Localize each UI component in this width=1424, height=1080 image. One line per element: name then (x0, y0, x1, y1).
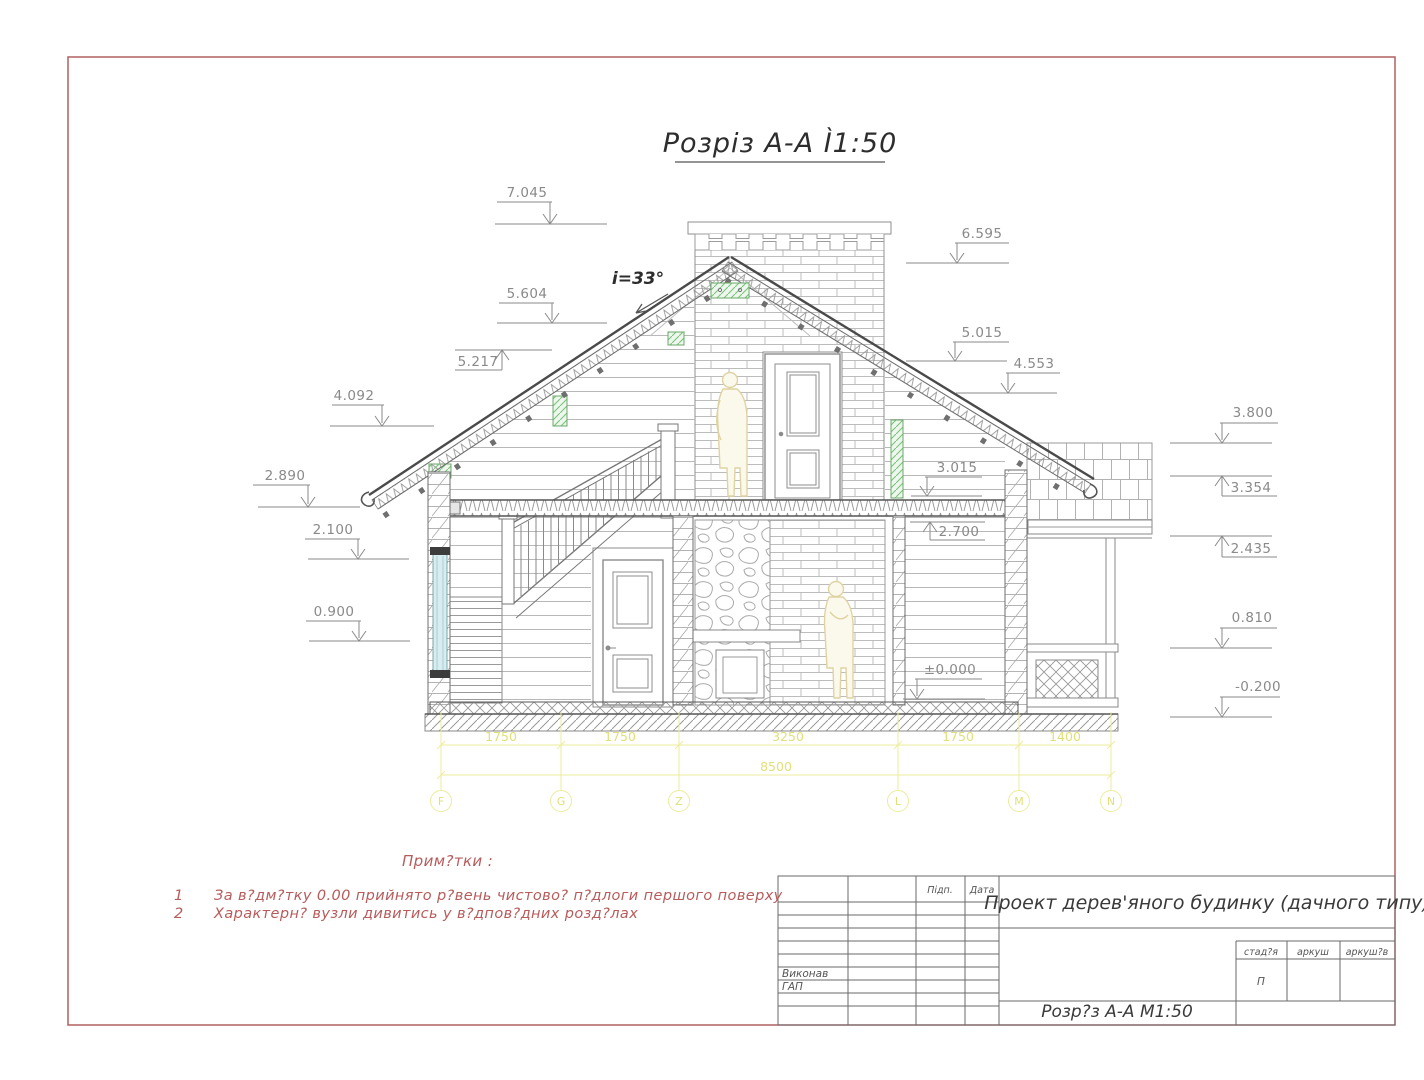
section-drawing-canvas: Розріз А-А Ì1:50 (0, 0, 1424, 1080)
interior-wall (673, 516, 693, 705)
dim-segment: 3250 (772, 729, 804, 744)
porch-lattice (1036, 660, 1098, 698)
section-title: Розріз А-А Ì1:50 (663, 127, 898, 162)
sheets-label: аркуш?в (1346, 947, 1389, 958)
elevation-marker: 5.015 (906, 325, 1009, 361)
first-floor-ceiling (448, 500, 1022, 516)
porch-shingle-roof (1027, 443, 1152, 520)
ridge-plate (711, 283, 749, 298)
elevation-marker: 7.045 (495, 185, 607, 224)
elevation-marker: 5.217 (455, 350, 552, 370)
title-block: Підп. Дата Виконав ГАП Проект дерев'яног… (778, 876, 1424, 1025)
svg-text:4.553: 4.553 (1014, 356, 1055, 372)
dim-total: 8500 (760, 759, 792, 774)
svg-text:±0.000: ±0.000 (924, 662, 976, 678)
exterior-wall-right (1005, 470, 1027, 714)
grid-axis-bubble: F (438, 795, 444, 808)
elevation-marker: 3.354 (1170, 476, 1277, 496)
dimension-labels: 1750 1750 3250 1750 1400 8500 F G Z L M … (438, 729, 1115, 808)
note-text: За в?дм?тку 0.00 прийнято р?вень чистово… (214, 888, 783, 904)
interior-wall-2 (893, 516, 905, 705)
elevation-marker: 0.810 (1170, 610, 1277, 648)
drawing-title: Розр?з А-А М1:50 (1041, 1002, 1193, 1022)
project-title: Проект дерев'яного будинку (дачного типу… (984, 892, 1424, 914)
note-number: 2 (174, 906, 184, 922)
elevation-marker: 2.890 (253, 468, 360, 507)
elevation-marker: 4.553 (956, 356, 1060, 393)
svg-text:3.354: 3.354 (1231, 480, 1272, 496)
elevation-marker: 3.800 (1170, 405, 1278, 443)
porch-post (1106, 538, 1115, 700)
porch-rail (1027, 644, 1118, 652)
dim-segment: 1400 (1049, 729, 1081, 744)
slope-label: i=33° (612, 269, 664, 289)
grid-axis-bubble: G (557, 795, 566, 808)
svg-text:5.015: 5.015 (962, 325, 1003, 341)
svg-text:4.092: 4.092 (334, 388, 375, 404)
svg-text:3.015: 3.015 (937, 460, 978, 476)
svg-text:2.700: 2.700 (939, 524, 980, 540)
note-number: 1 (174, 888, 184, 904)
elevation-marker: 5.604 (497, 286, 607, 323)
porch-floor (1027, 698, 1118, 707)
floor-and-foundation (425, 702, 1118, 731)
executor-label: Виконав (782, 968, 828, 980)
elevation-marker: 0.900 (306, 604, 410, 641)
svg-text:-0.200: -0.200 (1235, 679, 1281, 695)
notes: Прим?тки : 1 За в?дм?тку 0.00 прийнято р… (174, 852, 783, 922)
elevation-marker: 6.595 (906, 226, 1009, 263)
stage-value: П (1257, 976, 1265, 988)
wall-window (430, 547, 450, 678)
sheet-label: аркуш (1297, 947, 1329, 958)
interior-door (591, 545, 675, 707)
svg-text:5.217: 5.217 (458, 354, 499, 370)
house-section (362, 222, 1152, 731)
svg-text:5.604: 5.604 (507, 286, 548, 302)
newel-post-lower (502, 518, 514, 604)
gable-brace (668, 332, 684, 345)
firebox-inner (723, 657, 757, 693)
svg-text:0.900: 0.900 (314, 604, 355, 620)
roof-support-post-left (553, 396, 567, 426)
stage-label: стад?я (1244, 947, 1278, 958)
sign-label: Підп. (927, 885, 953, 896)
svg-text:0.810: 0.810 (1232, 610, 1273, 626)
elevation-marker: 2.100 (305, 522, 409, 559)
svg-text:2.435: 2.435 (1231, 541, 1272, 557)
gap-label: ГАП (782, 981, 803, 993)
attic-door (763, 352, 842, 500)
drawing-sheet: Розріз А-А Ì1:50 (0, 0, 1424, 1080)
dim-segment: 1750 (485, 729, 517, 744)
svg-text:2.100: 2.100 (313, 522, 354, 538)
note-text: Характерн? вузли дивитись у в?дпов?дних … (213, 906, 638, 922)
elevation-marker: -0.200 (1170, 679, 1281, 717)
dim-segment: 1750 (942, 729, 974, 744)
svg-text:7.045: 7.045 (507, 185, 548, 201)
dim-segment: 1750 (604, 729, 636, 744)
grid-axis-bubble: N (1107, 795, 1115, 808)
svg-text:6.595: 6.595 (962, 226, 1003, 242)
section-title-text: Розріз А-А Ì1:50 (663, 127, 898, 159)
elevation-marker: 4.092 (330, 388, 434, 426)
grid-axis-bubble: M (1014, 795, 1024, 808)
floor-slab (430, 702, 1018, 714)
elevation-marker: 2.435 (1170, 536, 1277, 557)
fireplace-mantel (688, 630, 800, 642)
roof-support-post-right (891, 420, 903, 498)
grid-axis-bubble: Z (675, 795, 683, 808)
svg-text:2.890: 2.890 (265, 468, 306, 484)
grid-axis-bubble: L (895, 795, 902, 808)
svg-text:3.800: 3.800 (1233, 405, 1274, 421)
roof-slope-annotation: i=33° (612, 269, 668, 313)
notes-heading: Прим?тки : (402, 852, 493, 870)
